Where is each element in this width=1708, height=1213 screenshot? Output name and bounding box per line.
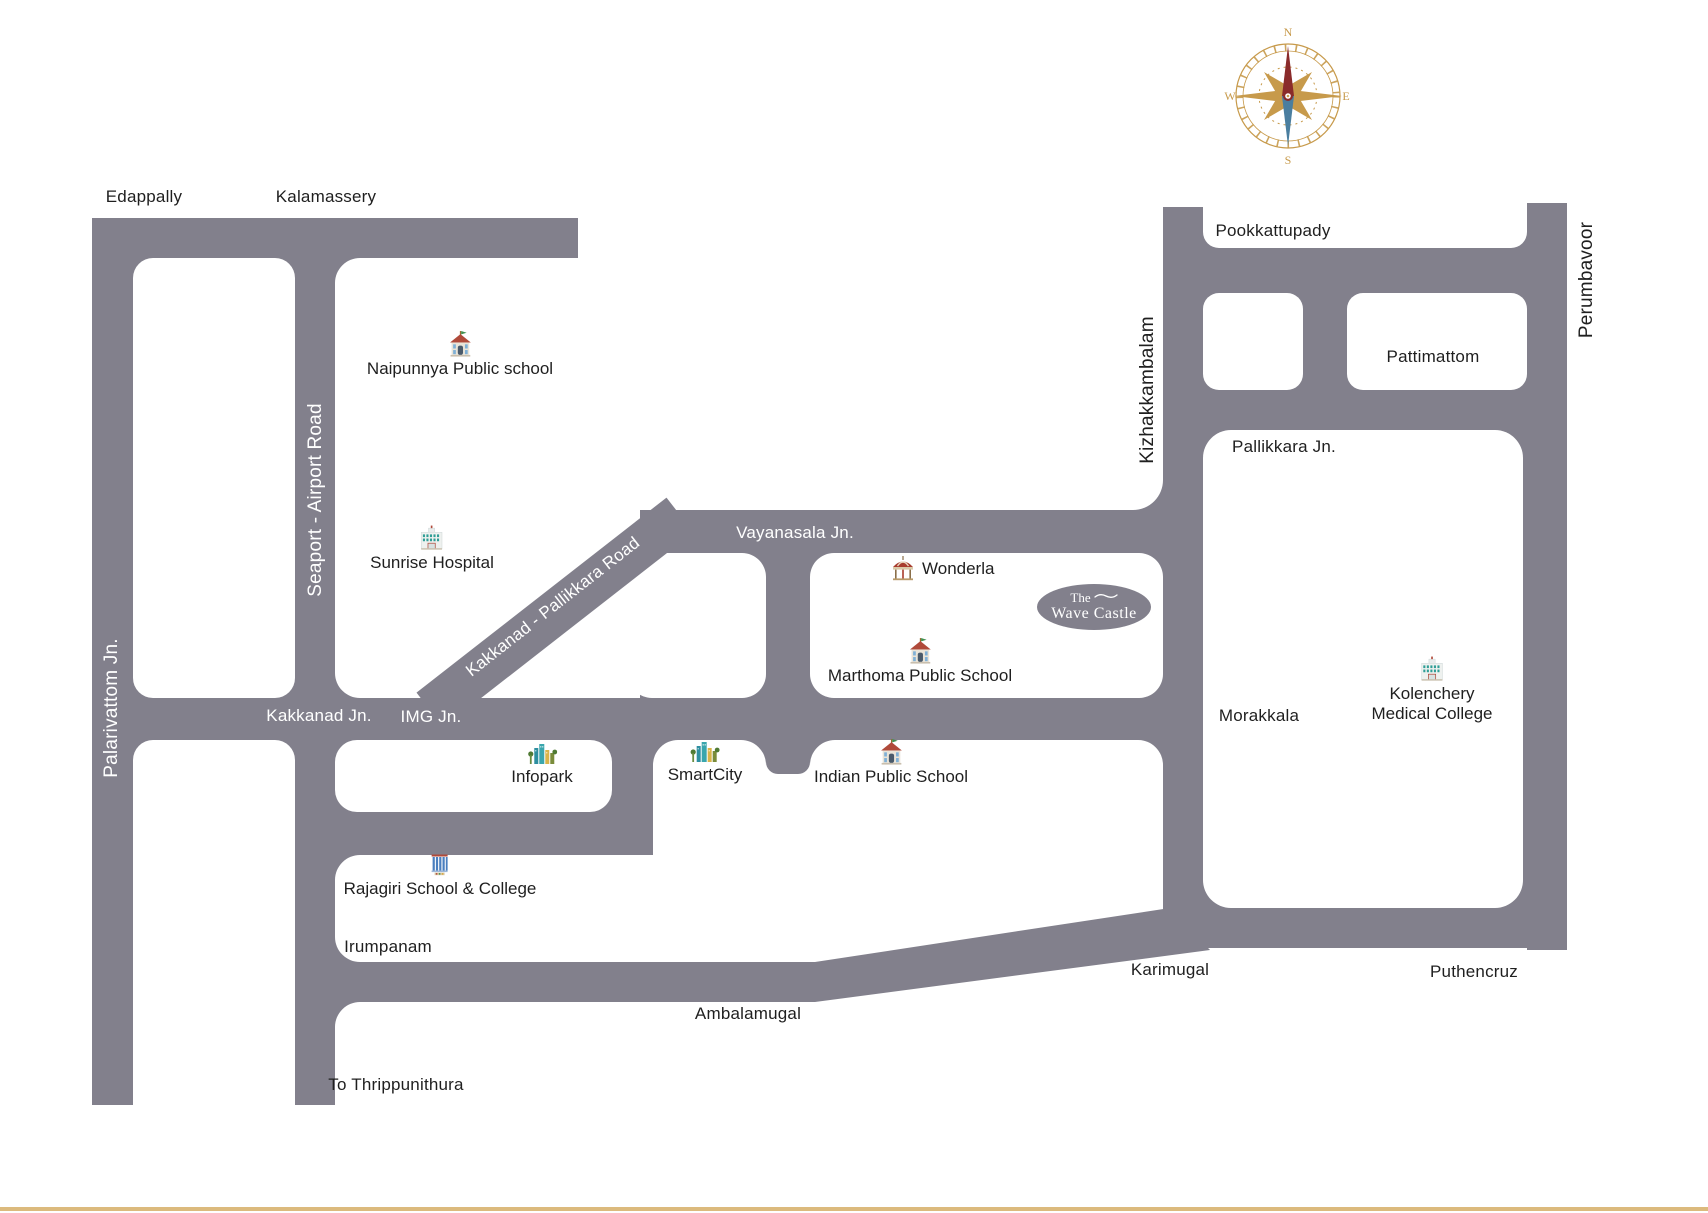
wave-castle-logo: The Wave Castle <box>1037 584 1151 630</box>
school-icon <box>906 637 933 664</box>
hospital-icon <box>1418 655 1445 682</box>
label-ambalamugal: Ambalamugal <box>695 1004 801 1024</box>
landmark-infopark: Infopark <box>511 741 572 787</box>
compass-e: E <box>1342 89 1349 103</box>
label-seaport-airport-road: Seaport - Airport Road <box>305 403 327 596</box>
label-irumpanam: Irumpanam <box>344 937 432 957</box>
logo-line1: The <box>1070 590 1090 605</box>
hospital-icon <box>419 524 446 551</box>
compass-w: W <box>1224 89 1236 103</box>
landmark-label: Indian Public School <box>814 766 968 787</box>
label-to-thrippunithura: To Thrippunithura <box>328 1075 463 1095</box>
label-kakkanad-jn: Kakkanad Jn. <box>266 706 371 726</box>
wave-icon <box>1094 592 1118 600</box>
block-pattimattom <box>1347 293 1527 390</box>
label-puthencruz: Puthencruz <box>1430 962 1518 982</box>
label-perumbavoor: Perumbavoor <box>1576 222 1598 338</box>
road-network <box>0 0 1708 1213</box>
landmark-naipunnya: Naipunnya Public school <box>367 330 553 379</box>
road-stub-central <box>766 726 810 774</box>
block-left-lower-ext <box>133 900 295 1113</box>
location-map: Edappally Kalamassery Pookkattupady Patt… <box>0 0 1708 1213</box>
landmark-rajagiri: Rajagiri School & College <box>344 851 537 899</box>
landmark-label: Sunrise Hospital <box>370 552 494 573</box>
carousel-icon <box>890 555 916 581</box>
north-needle <box>1282 46 1294 96</box>
landmark-label: Marthoma Public School <box>828 665 1012 686</box>
school-icon <box>877 738 904 765</box>
label-kalamassery: Kalamassery <box>276 187 376 207</box>
landmark-label: Rajagiri School & College <box>344 878 537 899</box>
landmark-label: SmartCity <box>668 764 743 785</box>
college-icon <box>427 851 453 877</box>
landmark-label: Wonderla <box>922 558 994 579</box>
label-edappally: Edappally <box>106 187 182 207</box>
label-img-jn: IMG Jn. <box>401 707 462 727</box>
compass-n: N <box>1284 25 1293 39</box>
road-ambalamugal-band <box>315 962 815 1002</box>
label-karimugal: Karimugal <box>1131 960 1209 980</box>
school-icon <box>446 330 473 357</box>
landmark-label: Infopark <box>511 766 572 787</box>
landmark-marthoma: Marthoma Public School <box>828 637 1012 686</box>
road-top-band <box>335 218 578 258</box>
compass-s: S <box>1285 153 1292 167</box>
bottom-accent-line <box>0 1207 1708 1211</box>
block-small-right <box>1203 293 1303 390</box>
label-pookkattupady: Pookkattupady <box>1215 221 1330 241</box>
landmark-label-line2: Medical College <box>1372 703 1493 724</box>
skyline-icon <box>690 739 720 763</box>
label-pattimattom: Pattimattom <box>1387 347 1480 367</box>
landmark-wonderla: Wonderla <box>890 555 994 581</box>
landmark-indian-public: Indian Public School <box>814 738 968 787</box>
skyline-icon <box>527 741 557 765</box>
block-left-upper <box>133 258 295 698</box>
road-ambalamugal-slope <box>815 908 1210 1002</box>
landmark-label: Naipunnya Public school <box>367 358 553 379</box>
landmark-smartcity: SmartCity <box>668 739 743 785</box>
label-palarivattom-jn: Palarivattom Jn. <box>101 638 123 777</box>
label-morakkala: Morakkala <box>1219 706 1299 726</box>
south-needle <box>1282 96 1294 146</box>
label-kizhakkambalam: Kizhakkambalam <box>1137 316 1159 463</box>
landmark-sunrise: Sunrise Hospital <box>370 524 494 573</box>
label-pallikkara-jn: Pallikkara Jn. <box>1232 437 1336 457</box>
landmark-kolenchery: Kolenchery Medical College <box>1372 655 1493 724</box>
label-vayanasala-jn: Vayanasala Jn. <box>736 523 854 543</box>
compass-rose: N S W E <box>1222 20 1354 168</box>
logo-line2: Wave Castle <box>1037 605 1151 622</box>
block-central-upper <box>628 553 766 698</box>
landmark-label-line1: Kolenchery <box>1389 683 1474 704</box>
